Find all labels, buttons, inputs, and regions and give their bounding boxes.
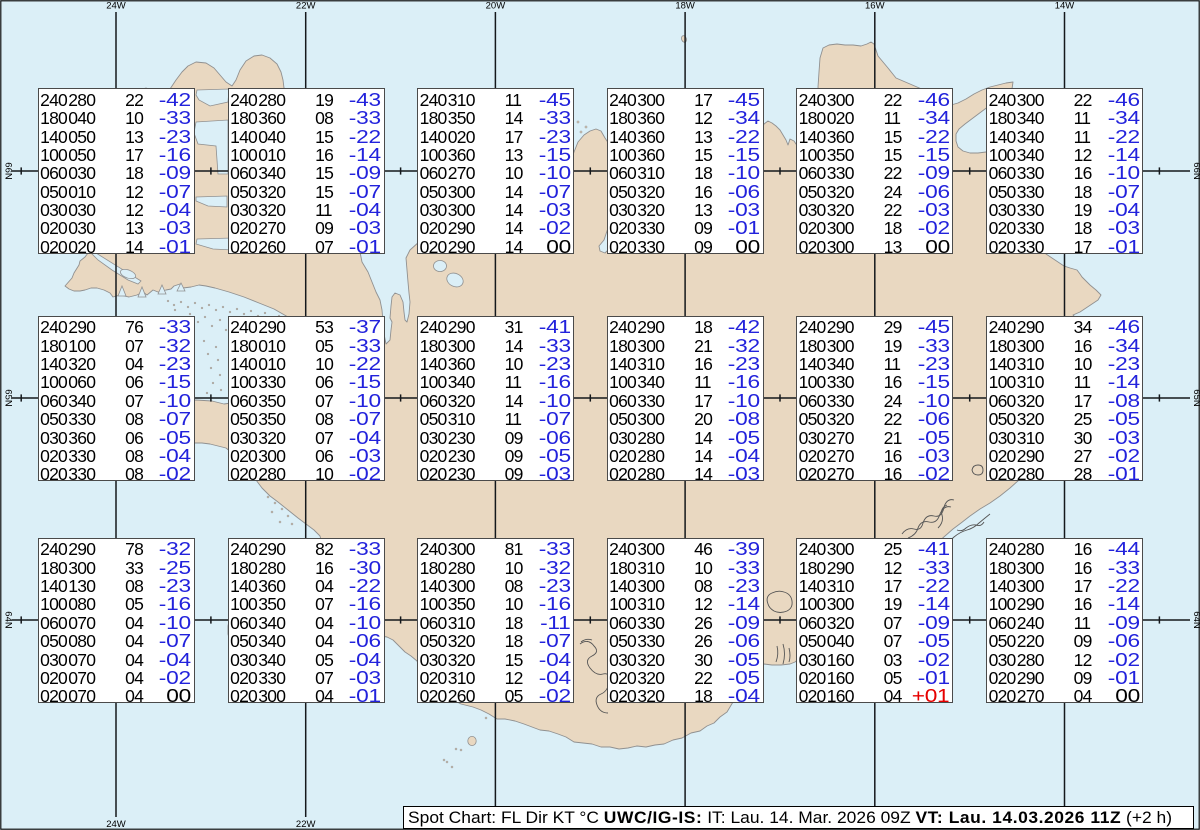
- svg-text:24W: 24W: [106, 1, 126, 12]
- svg-text:22W: 22W: [296, 1, 316, 12]
- svg-text:24W: 24W: [106, 819, 126, 830]
- svg-text:18W: 18W: [675, 1, 695, 12]
- svg-text:20W: 20W: [486, 1, 506, 12]
- svg-text:65N: 65N: [3, 389, 14, 407]
- svg-text:14W: 14W: [1055, 1, 1075, 12]
- svg-text:64N: 64N: [3, 611, 14, 629]
- svg-text:22W: 22W: [296, 819, 316, 830]
- svg-text:66N: 66N: [3, 162, 14, 180]
- svg-text:16W: 16W: [865, 1, 885, 12]
